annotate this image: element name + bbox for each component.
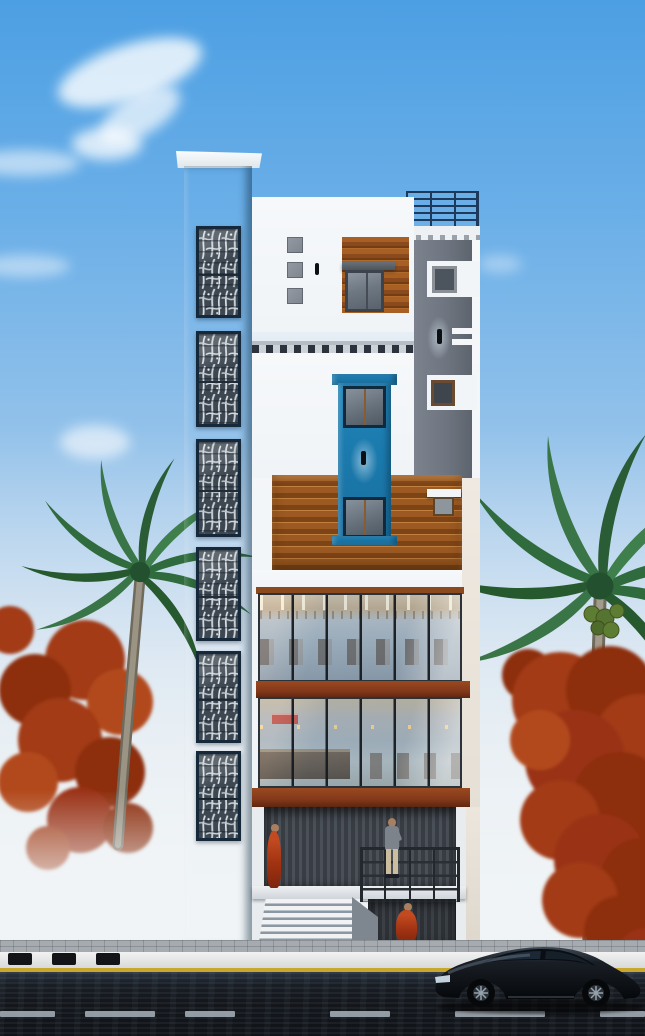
lane-dash <box>185 1011 235 1017</box>
cloud <box>0 150 80 176</box>
curb-block <box>52 953 76 965</box>
curb-block <box>96 953 120 965</box>
lane-dash <box>85 1011 155 1017</box>
roof-railing <box>406 191 479 226</box>
screen-panel <box>196 331 241 427</box>
black-coupe <box>428 933 645 1017</box>
facade-square <box>287 288 303 304</box>
small-window <box>432 266 457 293</box>
right-fascia-lower <box>466 807 480 947</box>
scene <box>0 0 645 1036</box>
screen-panel <box>196 226 241 318</box>
screen-panel <box>196 651 241 743</box>
blue-column-window-lower <box>343 497 386 538</box>
blue-column-window-upper <box>343 386 386 428</box>
glass-floor-upper <box>258 593 462 682</box>
curb-block <box>8 953 32 965</box>
lane-dash <box>0 1011 55 1017</box>
porch-railing <box>360 847 460 902</box>
woman-sitting-lower <box>396 903 418 945</box>
screen-panel <box>196 547 241 641</box>
entrance-beam <box>252 788 470 807</box>
small-window <box>431 380 455 406</box>
cornice-dashes <box>252 345 414 353</box>
accent-stripe <box>452 328 480 334</box>
cloud <box>0 255 70 277</box>
cloud <box>478 255 522 273</box>
window-awning <box>427 489 461 497</box>
man-standing-porch <box>382 818 402 890</box>
glass-floor-lower <box>258 697 462 788</box>
wall-lamp <box>361 451 366 465</box>
facade-square <box>287 262 303 278</box>
screen-panel <box>196 751 241 841</box>
woman-standing-left <box>266 824 283 888</box>
small-window <box>433 497 454 516</box>
screen-panel <box>196 439 241 537</box>
right-fascia <box>462 478 480 810</box>
blue-column-base <box>332 536 397 545</box>
top-floor-door <box>345 270 384 312</box>
parapet-band <box>404 226 480 235</box>
lane-dash <box>330 1011 390 1017</box>
door-awning <box>342 262 395 270</box>
wall-lamp <box>315 263 319 275</box>
accent-stripe <box>452 339 480 345</box>
right-palm-tree <box>460 520 645 980</box>
wall-lamp <box>437 329 442 344</box>
ground-haze <box>0 790 185 940</box>
cloud <box>72 128 142 160</box>
facade-square <box>287 237 303 253</box>
coconuts <box>584 604 624 638</box>
floor-band-wood <box>256 681 470 698</box>
